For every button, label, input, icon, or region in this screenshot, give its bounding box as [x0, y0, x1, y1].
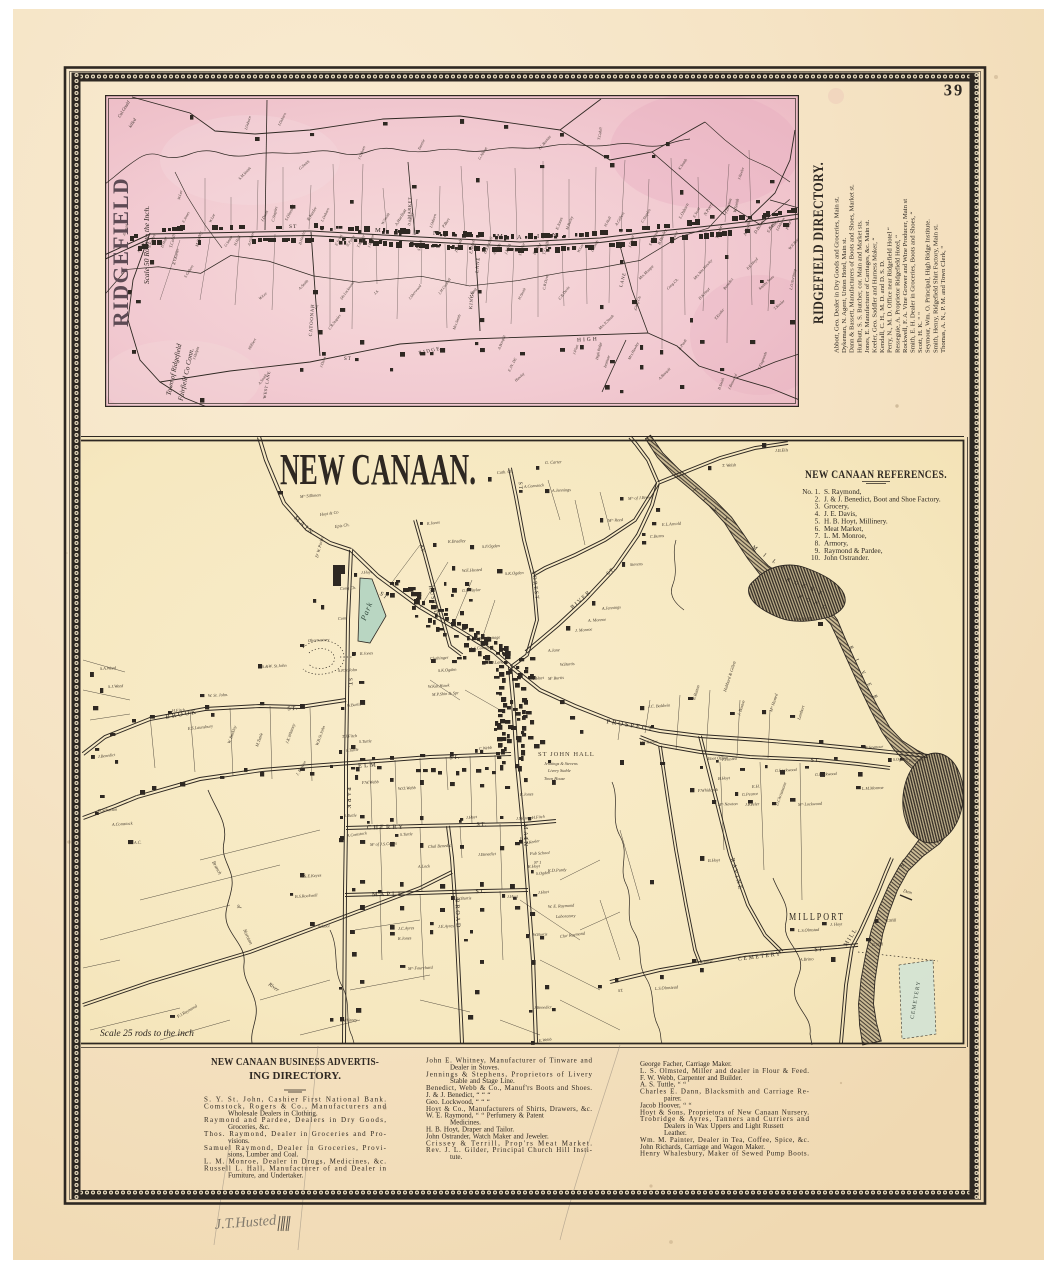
svg-text:ST.: ST. — [347, 678, 353, 688]
svg-text:E.H.: E.H. — [751, 784, 760, 789]
svg-text:Scale 50 Rods to the Inch.: Scale 50 Rods to the Inch. — [142, 206, 151, 284]
svg-text:J.E.Ayres: J.E.Ayres — [438, 923, 455, 929]
svg-text:Thomas, A. N., P. M. and Town: Thomas, A. N., P. M. and Town Clerk, “ — [940, 246, 947, 353]
svg-text:A.Britto: A.Britto — [799, 956, 815, 962]
svg-text:Hurlbutt, S. S. Butcher, cor.: Hurlbutt, S. S. Butcher, cor. Main and M… — [856, 220, 863, 353]
svg-text:S.Tuttle: S.Tuttle — [700, 958, 713, 964]
svg-text:Smith, E. H. Dealer in Groceri: Smith, E. H. Dealer in Groceries, Boots … — [910, 211, 917, 353]
svg-text:I: I — [415, 229, 417, 236]
svg-text:A.Jane: A.Jane — [547, 647, 560, 653]
svg-text:MAPLE: MAPLE — [372, 891, 404, 899]
svg-text:R.Jones: R.Jones — [397, 935, 412, 941]
svg-text:W. E. Raymond, “ “: W. E. Raymond, “ “ Perfumery & Patent — [426, 1112, 544, 1120]
svg-text:Resseguie, A. Proprietor Ridge: Resseguie, A. Proprietor Ridgefield Hote… — [894, 235, 901, 353]
svg-text:ST.: ST. — [475, 889, 486, 895]
svg-text:ST.: ST. — [810, 758, 821, 765]
svg-text:Jennings & Stevens: Jennings & Stevens — [544, 761, 578, 766]
svg-text:M: M — [497, 233, 503, 240]
svg-text:ST: ST — [344, 357, 352, 362]
svg-text:S.K.Ogden: S.K.Ogden — [505, 570, 524, 576]
svg-text:ELM: ELM — [358, 761, 378, 769]
svg-text:HIGH: HIGH — [577, 336, 599, 343]
svg-text:J.Hoyt: J.Hoyt — [361, 569, 373, 575]
svg-text:J.Benedict: J.Benedict — [534, 1004, 553, 1010]
svg-text:Seymour, Wm. O. Principal, Hig: Seymour, Wm. O. Principal, High Ridge In… — [925, 219, 932, 353]
svg-text:RIDGEFIELD DIRECTORY.: RIDGEFIELD DIRECTORY. — [811, 162, 827, 324]
svg-text:W.O.Webb: W.O.Webb — [398, 785, 417, 791]
svg-text:W. St. John.: W. St. John. — [208, 692, 228, 698]
svg-text:Keeler, Geo. Saddler and Harne: Keeler, Geo. Saddler and Harness Maker, … — [872, 237, 879, 353]
svg-text:RIDGEFIELD: RIDGEFIELD — [108, 177, 133, 327]
svg-text:A.Jennings: A.Jennings — [551, 487, 572, 493]
svg-text:CHERRY: CHERRY — [367, 824, 405, 832]
svg-text:J.B.Ells: J.B.Ells — [775, 447, 789, 453]
svg-text:W.Burtis: W.Burtis — [533, 931, 548, 937]
svg-text:J.Hoyt: J.Hoyt — [507, 894, 519, 899]
svg-text:ST.: ST. — [449, 755, 460, 762]
svg-text:ING DIRECTORY.: ING DIRECTORY. — [249, 1070, 341, 1082]
svg-text:S.Tuttle: S.Tuttle — [359, 738, 372, 744]
svg-text:ST.: ST. — [814, 947, 825, 954]
svg-text:K.Bradley: K.Bradley — [447, 538, 466, 544]
svg-text:F.W.Webb: F.W.Webb — [361, 779, 380, 785]
svg-text:S.Tuttle: S.Tuttle — [344, 813, 357, 818]
svg-text:B.Hoyt: B.Hoyt — [708, 857, 721, 863]
svg-text:A.Lock: A.Lock — [417, 863, 430, 869]
svg-text:ST.: ST. — [618, 988, 624, 993]
svg-text:W.Burtis: W.Burtis — [560, 661, 575, 667]
svg-text:39: 39 — [944, 81, 965, 100]
svg-text:MARKET: MARKET — [407, 197, 413, 219]
svg-text:T. Welsh: T. Welsh — [722, 462, 737, 468]
svg-text:S.J.Weed: S.J.Weed — [108, 683, 124, 689]
svg-text:G.B.Taylor: G.B.Taylor — [462, 587, 482, 593]
svg-text:G.Mill: G.Mill — [872, 941, 884, 947]
svg-text:Henry Whalesbury, Maker of Sew: Henry Whalesbury, Maker of Sewed Pump Bo… — [640, 1150, 809, 1158]
svg-text:PARK: PARK — [345, 787, 351, 810]
svg-text:NEW CANAAN REFERENCES.: NEW CANAAN REFERENCES. — [805, 469, 947, 481]
svg-text:ST.: ST. — [517, 482, 524, 493]
svg-text:A: A — [517, 234, 522, 241]
svg-text:Jones, E. Manufacturer of Carr: Jones, E. Manufacturer of Carriages, &c.… — [864, 219, 871, 353]
svg-text:J.Hoyt: J.Hoyt — [466, 814, 478, 820]
svg-text:J.Benedict: J.Benedict — [478, 851, 497, 857]
svg-text:Kendall, C. H., M. D. and D. S: Kendall, C. H., M. D. and D. S. D. — [879, 260, 886, 353]
svg-text:MILLPORT: MILLPORT — [789, 912, 845, 923]
svg-text:N: N — [552, 232, 557, 239]
svg-text:MAIN: MAIN — [522, 824, 528, 848]
svg-text:B.Hoyt: B.Hoyt — [718, 775, 731, 781]
svg-text:Dann & Bassett, Manufacturers: Dann & Bassett, Manufacturers of Boots a… — [849, 184, 856, 353]
svg-text:ST JOHN HALL: ST JOHN HALL — [538, 751, 595, 758]
svg-text:J.Lane: J.Lane — [492, 659, 504, 665]
svg-text:I: I — [537, 233, 539, 240]
svg-text:T.J.Fitch: T.J.Fitch — [342, 733, 358, 739]
svg-text:J.C.Ayres: J.C.Ayres — [398, 925, 415, 931]
svg-text:tute.: tute. — [450, 1153, 462, 1161]
svg-text:School: School — [318, 923, 331, 929]
svg-text:Smith, Henry, Ridgefield Shirt: Smith, Henry, Ridgefield Shirt Factory, … — [932, 224, 939, 353]
svg-text:S.A.Weed: S.A.Weed — [100, 665, 117, 671]
svg-text:Stevens: Stevens — [630, 561, 644, 567]
svg-text:N: N — [433, 230, 438, 237]
svg-text:Furniture, and Undertaker.: Furniture, and Undertaker. — [228, 1171, 304, 1179]
svg-text:Town House: Town House — [544, 776, 565, 781]
svg-text:ST.: ST. — [287, 706, 298, 713]
svg-text:R.Jones: R.Jones — [519, 791, 534, 797]
svg-text:Burt’s Mill: Burt’s Mill — [795, 616, 814, 621]
svg-text:Livery Stable: Livery Stable — [547, 768, 571, 773]
svg-text:S.Ogden: S.Ogden — [893, 756, 908, 762]
svg-text:10.: 10. — [811, 554, 820, 562]
svg-text:Abbott, Geo. Dealer in Dry Goo: Abbott, Geo. Dealer in Dry Goods and Gro… — [834, 196, 841, 353]
svg-text:S.Tuttle: S.Tuttle — [400, 831, 413, 837]
svg-text:S.F.Ogden: S.F.Ogden — [482, 543, 500, 549]
svg-text:NEW CANAAN.: NEW CANAAN. — [280, 445, 476, 494]
svg-text:John Ostrander.: John Ostrander. — [824, 554, 869, 562]
svg-text:Scott, H. K. “: Scott, H. K. “ “ — [917, 312, 924, 353]
svg-text:R.Hoyt: R.Hoyt — [527, 863, 541, 869]
svg-text:ST: ST — [289, 224, 297, 230]
svg-text:T.Mill: T.Mill — [886, 917, 897, 923]
svg-text:Dykeman, N. Agent, Union Hotel: Dykeman, N. Agent, Union Hotel, Main st. — [841, 237, 848, 353]
svg-text:Com: Com — [338, 615, 346, 621]
svg-text:NEW CANAAN BUSINESS ADVERTIS-: NEW CANAAN BUSINESS ADVERTIS- — [211, 1056, 379, 1068]
svg-text:Scale 25 rods to the inch: Scale 25 rods to the inch — [100, 1029, 194, 1039]
svg-text:J.Keeler: J.Keeler — [745, 801, 760, 807]
svg-text:G. Carter: G. Carter — [545, 459, 562, 465]
svg-text:A: A — [395, 228, 400, 235]
svg-text:BROAD: BROAD — [453, 898, 460, 929]
svg-text:R.Jones: R.Jones — [359, 650, 374, 656]
svg-text:S.P.St.John: S.P.St.John — [338, 667, 357, 673]
svg-text:C.Burns: C.Burns — [650, 533, 665, 539]
svg-text:Rockwell, F. A. Vine Grower an: Rockwell, F. A. Vine Grower and Wine Pro… — [902, 199, 909, 353]
svg-text:Perry, N., M. D. Office near R: Perry, N., M. D. Office near Ridgefield … — [887, 227, 894, 353]
svg-text:ST.: ST. — [476, 822, 487, 828]
svg-text:M: M — [375, 227, 381, 234]
svg-text:A.C.: A.C. — [133, 840, 142, 845]
